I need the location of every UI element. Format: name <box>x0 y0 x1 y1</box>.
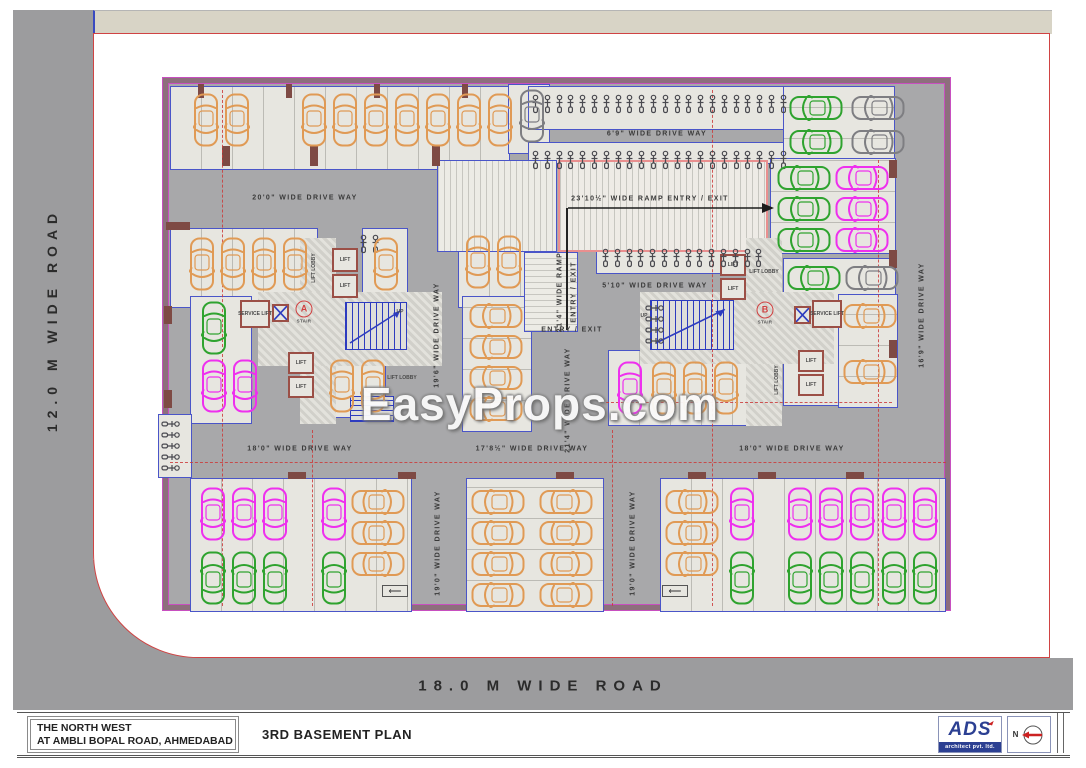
parked-car-orange <box>329 359 355 413</box>
wall-stub <box>222 146 230 166</box>
parked-car-orange <box>251 237 277 291</box>
bike-parking-icon <box>694 248 705 268</box>
bike-parking-icon <box>601 94 612 114</box>
parked-car-orange <box>373 237 399 291</box>
parked-car-green <box>231 551 257 605</box>
title-block-end-lines <box>1057 713 1064 753</box>
bike-parking-icon <box>766 94 777 114</box>
bike-parking-icon <box>719 150 730 170</box>
room-label: LIFT LOBBY <box>749 269 778 275</box>
parked-car-magenta <box>818 487 844 541</box>
parked-car-green <box>787 551 813 605</box>
parked-car-orange <box>471 520 525 546</box>
watermark: EasyProps.com <box>361 377 719 431</box>
parked-car-green <box>321 551 347 605</box>
parked-car-orange <box>843 303 897 329</box>
driveway-label: 18'0" WIDE DRIVE WAY <box>247 446 352 453</box>
bike-parking-icon <box>672 150 683 170</box>
wall-stub <box>556 472 574 479</box>
driveway-label: 19'0" WIDE DRIVE WAY <box>435 490 442 595</box>
parked-car-magenta <box>321 487 347 541</box>
parked-car-orange <box>425 93 451 147</box>
parked-car-orange <box>189 237 215 291</box>
parked-car-orange <box>487 93 513 147</box>
parked-car-green <box>777 165 831 191</box>
room-label: LIFT LOBBY <box>311 253 317 282</box>
bike-parking-icon <box>160 452 180 463</box>
parked-car-green <box>777 227 831 253</box>
parked-car-orange <box>843 359 897 385</box>
bike-parking-icon <box>624 248 635 268</box>
stair-marker-b: BSTAIR <box>757 302 774 325</box>
parked-car-orange <box>539 520 593 546</box>
wall-stub <box>398 472 416 479</box>
bike-parking-icon <box>624 150 635 170</box>
bike-parking-icon <box>613 150 624 170</box>
bike-parking-icon <box>554 94 565 114</box>
parked-car-green <box>200 551 226 605</box>
wall-stub <box>164 306 172 324</box>
driveway-label: 23'10½" WIDE RAMP ENTRY / EXIT <box>571 196 729 203</box>
driveway-label: 19'0" WIDE DRIVE WAY <box>630 490 637 595</box>
bike-parking-icon <box>636 150 647 170</box>
bike-parking-icon <box>742 150 753 170</box>
grid-dash-line <box>170 462 946 463</box>
parked-car-orange <box>539 551 593 577</box>
parked-car-magenta <box>835 196 889 222</box>
bike-parking-icon <box>742 248 753 268</box>
parked-car-orange <box>471 582 525 608</box>
bike-parking-icon <box>671 248 682 268</box>
room-label: SERVICE LIFT <box>238 311 272 317</box>
driveway-label: 20'0" WIDE DRIVE WAY <box>252 195 357 202</box>
bike-parking-icon <box>754 94 765 114</box>
driveway-label: 16'9" WIDE DRIVE WAY <box>919 262 926 367</box>
parked-car-orange <box>456 93 482 147</box>
bike-parking-icon <box>601 150 612 170</box>
bike-parking-icon <box>612 248 623 268</box>
bike-parking-icon <box>648 150 659 170</box>
room-label: LIFT <box>806 358 817 364</box>
parked-car-magenta <box>912 487 938 541</box>
bike-parking-icon <box>683 150 694 170</box>
bike-parking-icon <box>644 324 664 335</box>
exit-arrow-icon: ⟵ <box>382 585 408 597</box>
bike-parking-icon <box>683 248 694 268</box>
bike-parking-icon <box>719 94 730 114</box>
bike-parking-icon <box>530 150 541 170</box>
parked-car-orange <box>193 93 219 147</box>
wall-stub <box>310 146 318 166</box>
parked-car-gray <box>851 129 905 155</box>
parked-car-orange <box>332 93 358 147</box>
wall-stub <box>286 84 292 98</box>
bike-parking-icon <box>589 150 600 170</box>
parked-car-magenta <box>881 487 907 541</box>
parked-car-magenta <box>835 165 889 191</box>
driveway-label: ENTRY / EXIT <box>571 261 578 323</box>
parked-car-magenta <box>787 487 813 541</box>
stair-marker-a: ASTAIR <box>296 301 313 324</box>
north-arrow-icon <box>1019 724 1045 746</box>
driveway-label: 5'10" WIDE DRIVE WAY <box>602 283 707 290</box>
room-label: LIFT <box>728 262 739 268</box>
bike-parking-icon <box>778 94 789 114</box>
parked-car-orange <box>469 334 523 360</box>
grid-dash-line <box>312 430 313 606</box>
bike-parking-icon <box>647 248 658 268</box>
parked-car-orange <box>282 237 308 291</box>
parked-car-magenta <box>232 359 258 413</box>
parked-car-orange <box>351 489 405 515</box>
wall-stub <box>889 340 897 358</box>
room-label: LIFT <box>296 384 307 390</box>
parked-car-magenta <box>835 227 889 253</box>
driveway-label: 6'9" WIDE DRIVE WAY <box>607 131 707 138</box>
bike-parking-icon <box>160 429 180 440</box>
room-label: LIFT <box>340 283 351 289</box>
parked-car-orange <box>224 93 250 147</box>
bike-parking-icon <box>160 463 180 474</box>
ramp-path-line <box>566 208 568 330</box>
project-name-box: THE NORTH WEST AT AMBLI BOPAL ROAD, AHME… <box>27 716 239 753</box>
bike-parking-icon <box>766 150 777 170</box>
bike-parking-icon <box>659 248 670 268</box>
driveway-label: 19'6" WIDE DRIVE WAY <box>434 282 441 387</box>
parked-car-gray <box>851 95 905 121</box>
bike-parking-icon <box>707 150 718 170</box>
project-name-line1: THE NORTH WEST <box>37 722 235 735</box>
shaft-zone <box>272 304 289 322</box>
parked-car-green <box>729 551 755 605</box>
parked-car-orange <box>469 303 523 329</box>
bike-parking-icon <box>624 94 635 114</box>
parked-car-orange <box>363 93 389 147</box>
architect-logo: ADS architect pvt. ltd. <box>938 716 1002 753</box>
parked-car-green <box>789 95 843 121</box>
bike-parking-icon <box>660 94 671 114</box>
bike-parking-icon <box>644 302 664 313</box>
room-label: LIFT <box>296 360 307 366</box>
parked-car-magenta <box>729 487 755 541</box>
bike-parking-icon <box>577 150 588 170</box>
bike-parking-icon <box>731 94 742 114</box>
architect-logo-tagline: architect pvt. ltd. <box>939 742 1001 752</box>
wall-stub <box>288 472 306 479</box>
parked-car-orange <box>301 93 327 147</box>
bike-parking-icon <box>554 150 565 170</box>
room-label: UP <box>641 313 648 319</box>
driveway-label: 18'0" WIDE DRIVE WAY <box>739 446 844 453</box>
parked-car-magenta <box>262 487 288 541</box>
room-label: LIFT LOBBY <box>774 365 780 394</box>
bike-parking-icon <box>695 150 706 170</box>
parked-car-orange <box>496 235 522 289</box>
bike-parking-icon <box>754 150 765 170</box>
wall-stub <box>432 146 440 166</box>
parked-car-orange <box>471 551 525 577</box>
bike-parking-icon <box>565 94 576 114</box>
parked-car-green <box>881 551 907 605</box>
parked-car-green <box>849 551 875 605</box>
bike-parking-icon <box>753 248 764 268</box>
project-name-line2: AT AMBLI BOPAL ROAD, AHMEDABAD <box>37 735 235 748</box>
room-label: LIFT <box>806 382 817 388</box>
parked-car-orange <box>539 489 593 515</box>
wall-stub <box>889 160 897 178</box>
parked-car-magenta <box>231 487 257 541</box>
grid-dash-line <box>612 430 613 606</box>
title-block: THE NORTH WEST AT AMBLI BOPAL ROAD, AHME… <box>17 712 1070 758</box>
plan-title: 3RD BASEMENT PLAN <box>262 713 412 755</box>
bike-parking-icon <box>695 94 706 114</box>
wall-stub <box>846 472 864 479</box>
parked-car-green <box>262 551 288 605</box>
wall-stub <box>688 472 706 479</box>
parked-car-orange <box>471 489 525 515</box>
driveway-label: 21'4" WIDE RAMP <box>557 252 564 332</box>
parked-car-orange <box>465 235 491 289</box>
bike-parking-icon <box>706 248 717 268</box>
bike-parking-icon <box>683 94 694 114</box>
bike-parking-icon <box>648 94 659 114</box>
driveway-label: 17'8½" WIDE DRIVE WAY <box>476 446 589 453</box>
parked-car-magenta <box>200 487 226 541</box>
bike-parking-icon <box>565 150 576 170</box>
bike-parking-icon <box>600 248 611 268</box>
room-label: LIFT <box>728 286 739 292</box>
bike-parking-icon <box>160 440 180 451</box>
parked-car-green <box>201 301 227 355</box>
wall-stub <box>166 222 190 230</box>
bike-parking-icon <box>358 234 369 254</box>
bike-parking-icon <box>660 150 671 170</box>
parked-car-orange <box>539 582 593 608</box>
parked-car-green <box>789 129 843 155</box>
bike-parking-icon <box>636 94 647 114</box>
parked-car-magenta <box>201 359 227 413</box>
north-label: N <box>1013 730 1019 739</box>
bike-parking-icon <box>577 94 588 114</box>
exit-arrow-icon: ⟵ <box>662 585 688 597</box>
north-arrow: N <box>1007 716 1051 753</box>
parked-car-orange <box>351 520 405 546</box>
bike-parking-icon <box>742 94 753 114</box>
bike-parking-icon <box>160 418 180 429</box>
parked-car-green <box>787 265 841 291</box>
parked-car-orange <box>394 93 420 147</box>
parked-car-gray <box>845 265 899 291</box>
bike-parking-icon <box>542 150 553 170</box>
parked-car-magenta <box>849 487 875 541</box>
parked-car-orange <box>665 520 719 546</box>
drawing-sheet: 12.0 M WIDE ROAD 18.0 M WIDE ROAD ⟵⟵20'0… <box>0 0 1086 768</box>
driveway-label: ENTRY / EXIT <box>541 327 603 334</box>
bike-parking-icon <box>707 94 718 114</box>
parked-car-gray <box>519 89 545 143</box>
parked-car-orange <box>351 551 405 577</box>
parked-car-green <box>777 196 831 222</box>
bike-parking-icon <box>672 94 683 114</box>
bike-parking-icon <box>613 94 624 114</box>
bike-parking-icon <box>589 94 600 114</box>
bike-parking-icon <box>731 150 742 170</box>
bike-parking-icon <box>635 248 646 268</box>
bike-parking-icon <box>644 336 664 347</box>
room-label: LIFT <box>340 257 351 263</box>
parked-car-green <box>912 551 938 605</box>
parked-car-green <box>818 551 844 605</box>
parked-car-orange <box>665 489 719 515</box>
shaft-zone <box>794 306 811 324</box>
wall-stub <box>164 390 172 408</box>
room-label: SERVICE LIFT <box>810 311 844 317</box>
parked-car-orange <box>220 237 246 291</box>
wall-stub <box>758 472 776 479</box>
room-label: UP <box>397 309 404 315</box>
parked-car-orange <box>665 551 719 577</box>
